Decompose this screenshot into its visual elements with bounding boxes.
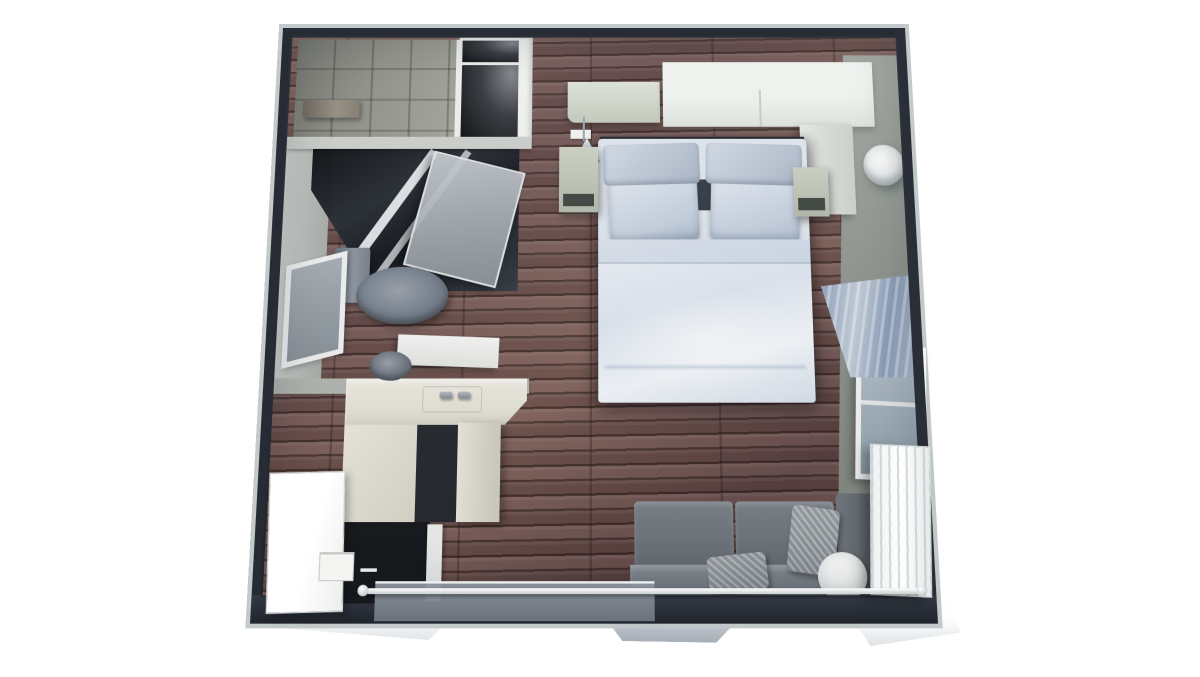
shower-bench [302,100,360,118]
kitchen-counter-leg [340,425,417,522]
nightstand-left [559,147,598,212]
duvet-crease [605,365,807,368]
floating-shelf [568,82,661,123]
pendant-lamp-cord [583,117,585,141]
pillow [603,143,701,186]
sink-vanity [396,334,499,368]
counter-open-slot [414,425,458,522]
nightstand-right [793,167,830,216]
closet-compartment-top [459,38,524,65]
fridge-cabinet [266,471,346,614]
nightstand-shelf-slot [798,198,825,210]
bathroom-window [281,251,348,369]
cabinet-seam [759,90,762,127]
kitchen-sink [422,386,482,412]
radiator [870,444,932,598]
double-bed [598,139,816,403]
window-mullion [861,400,921,408]
mini-drawer-cabinet [318,552,354,581]
handle-end-knob [916,585,928,597]
sliding-door-handle-bar [366,588,921,594]
sliding-door-glass [374,581,655,621]
bathroom-north-wall [287,137,532,149]
pillow [608,176,700,243]
tiled-shower-room [293,40,459,138]
wardrobe-side-wall [517,38,533,149]
nightstand-shelf-slot [563,194,594,206]
kitchen-lower-cabinet [456,423,501,522]
floorplan-room [250,28,938,624]
wall-north [282,28,905,38]
duvet [598,239,816,402]
wall-switch-plate [571,130,591,139]
pillow [705,143,802,186]
duvet-fold [598,239,811,263]
floorplan-canvas [0,0,1200,677]
entry-door-handle [360,568,377,572]
sink-tap [458,392,471,399]
pillow [710,176,799,243]
overhead-bridge-cabinet [662,62,874,127]
sink-tap [439,392,452,399]
